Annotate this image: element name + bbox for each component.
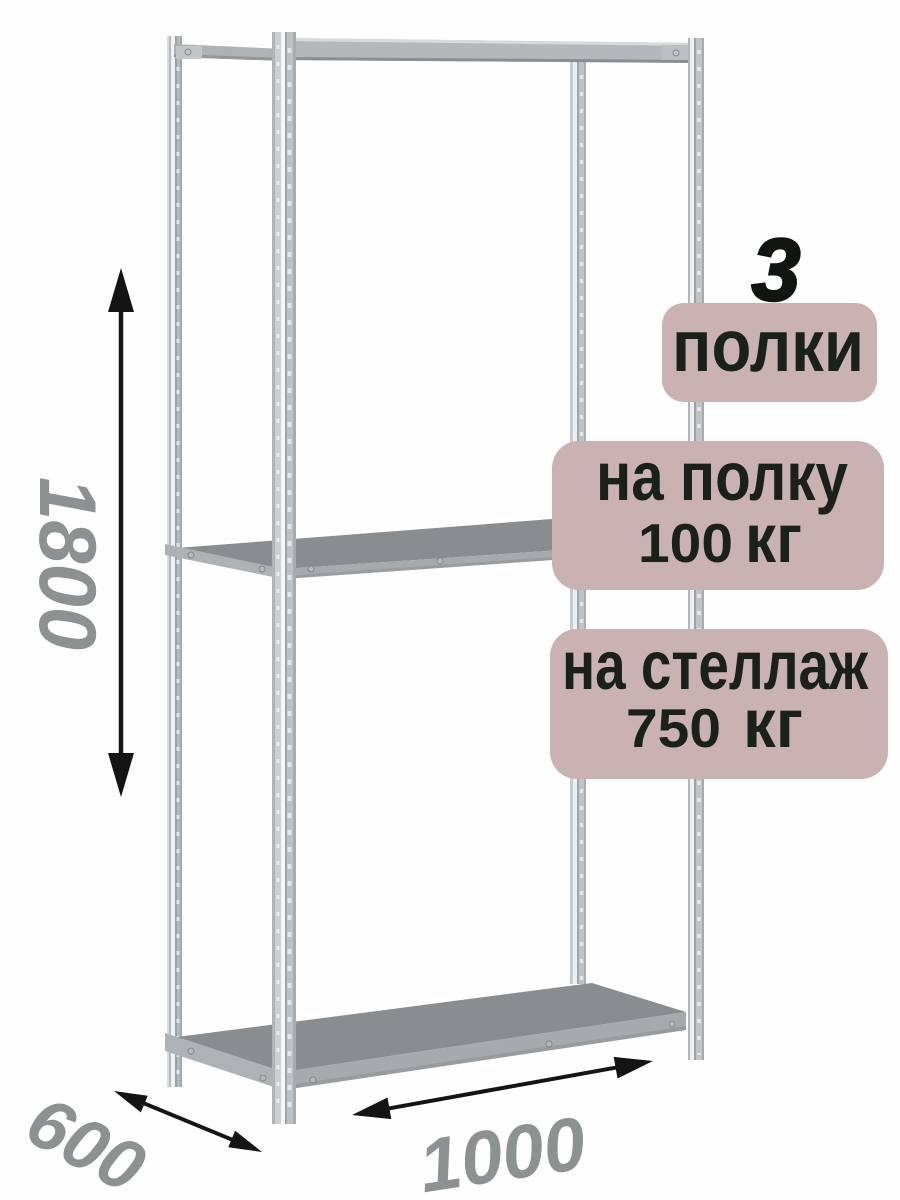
svg-text:750: 750 bbox=[626, 697, 721, 759]
svg-text:полки: полки bbox=[672, 306, 864, 387]
svg-text:кг: кг bbox=[743, 685, 803, 762]
svg-text:100: 100 bbox=[638, 512, 733, 574]
svg-text:на полку: на полку bbox=[596, 438, 848, 515]
svg-text:на стеллаж: на стеллаж bbox=[562, 627, 869, 704]
svg-text:1800: 1800 bbox=[22, 477, 112, 650]
svg-text:кг: кг bbox=[745, 500, 802, 577]
